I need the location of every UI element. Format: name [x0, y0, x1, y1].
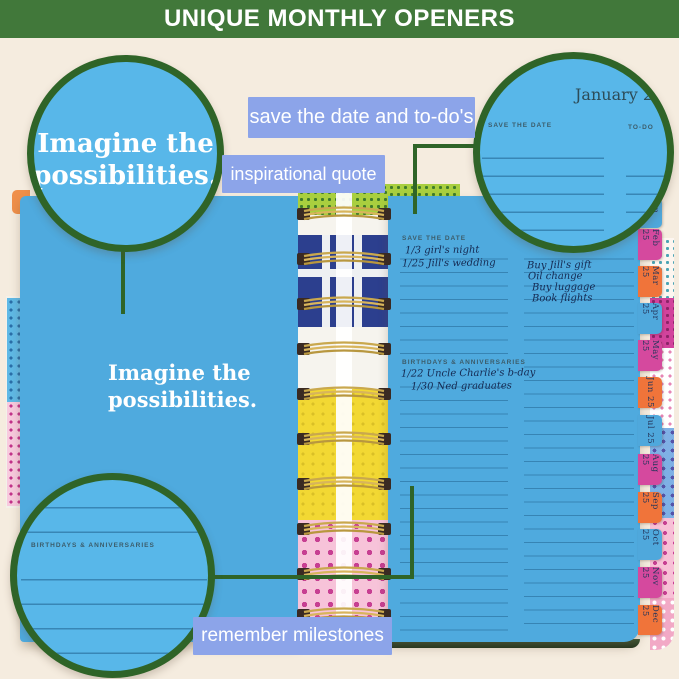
callout-circle-january: January 25 SAVE THE DATE TO-DO: [473, 52, 674, 253]
banner: UNIQUE MONTHLY OPENERS: [0, 0, 679, 38]
save-the-date-header: SAVE THE DATE: [402, 235, 466, 242]
handwritten-entry: Buy luggage: [532, 282, 595, 294]
month-tab-apr: Apr 25: [638, 303, 662, 334]
birthdays-header: BIRTHDAYS & ANNIVERSARIES: [402, 359, 526, 366]
page-quote: Imagine the possibilities.: [108, 359, 257, 414]
callout-ruled-lines: [482, 141, 604, 247]
banner-title: UNIQUE MONTHLY OPENERS: [164, 5, 515, 33]
month-tab-dec: Dec 25: [638, 605, 662, 635]
month-tab-oct: Oct 25: [638, 529, 662, 560]
binding-coil: [296, 249, 392, 269]
month-tab-may: May 25: [638, 340, 662, 371]
month-tab-jul: Jul 25: [638, 415, 662, 446]
callout-circle-milestones: BIRTHDAYS & ANNIVERSARIES: [10, 473, 215, 678]
handwritten-entry: 1/25 Jill's wedding: [402, 258, 496, 270]
callout-circle-quote: Imagine the possibilities.: [27, 55, 224, 252]
handwritten-entry: 1/30 Ned graduates: [411, 380, 512, 392]
product-infographic: { "banner": { "title": "UNIQUE MONTHLY O…: [0, 0, 679, 679]
ruled-lines-birthdays: [400, 374, 508, 632]
month-tab-sep: Sep 25: [638, 492, 662, 523]
callout-ruled-lines: [626, 159, 674, 249]
handwritten-entry: 1/22 Uncle Charlie's b-day: [401, 367, 536, 379]
right-page: January 25 SAVE THE DATE 1/3 girl's nigh…: [388, 196, 640, 642]
callout-ruled-lines: [21, 484, 207, 536]
binding-coil: [296, 429, 392, 449]
binding-coil: [296, 294, 392, 314]
handwritten-entry: Buy Jill's gift: [527, 260, 592, 272]
callout-month-title: January 25: [575, 85, 663, 104]
callout-birthdays-header: BIRTHDAYS & ANNIVERSARIES: [31, 542, 155, 549]
month-tab-nov: Nov 25: [638, 567, 662, 598]
callout-save-header: SAVE THE DATE: [488, 122, 552, 129]
month-tab-aug: Aug 25: [638, 454, 662, 485]
connector-line-milestones: [210, 486, 414, 579]
callout-todo-header: TO-DO: [628, 124, 654, 131]
binding-coil: [296, 204, 392, 224]
month-tab-mar: Mar 25: [638, 266, 662, 297]
callout-label-save-the-date: save the date and to-do's: [248, 97, 475, 138]
month-tab-jun: Jun 25: [638, 377, 662, 408]
handwritten-entry: Book flights: [532, 293, 593, 305]
binding-coil: [296, 384, 392, 404]
callout-ruled-lines: [21, 556, 207, 670]
callout-label-inspirational-quote: inspirational quote: [222, 155, 385, 193]
handwritten-entry: 1/3 girl's night: [405, 245, 480, 257]
handwritten-entry: Oil change: [528, 271, 583, 283]
callout-quote-text: Imagine the possibilities.: [33, 115, 218, 192]
binding-coil: [296, 339, 392, 359]
callout-label-remember-milestones: remember milestones: [193, 617, 392, 655]
